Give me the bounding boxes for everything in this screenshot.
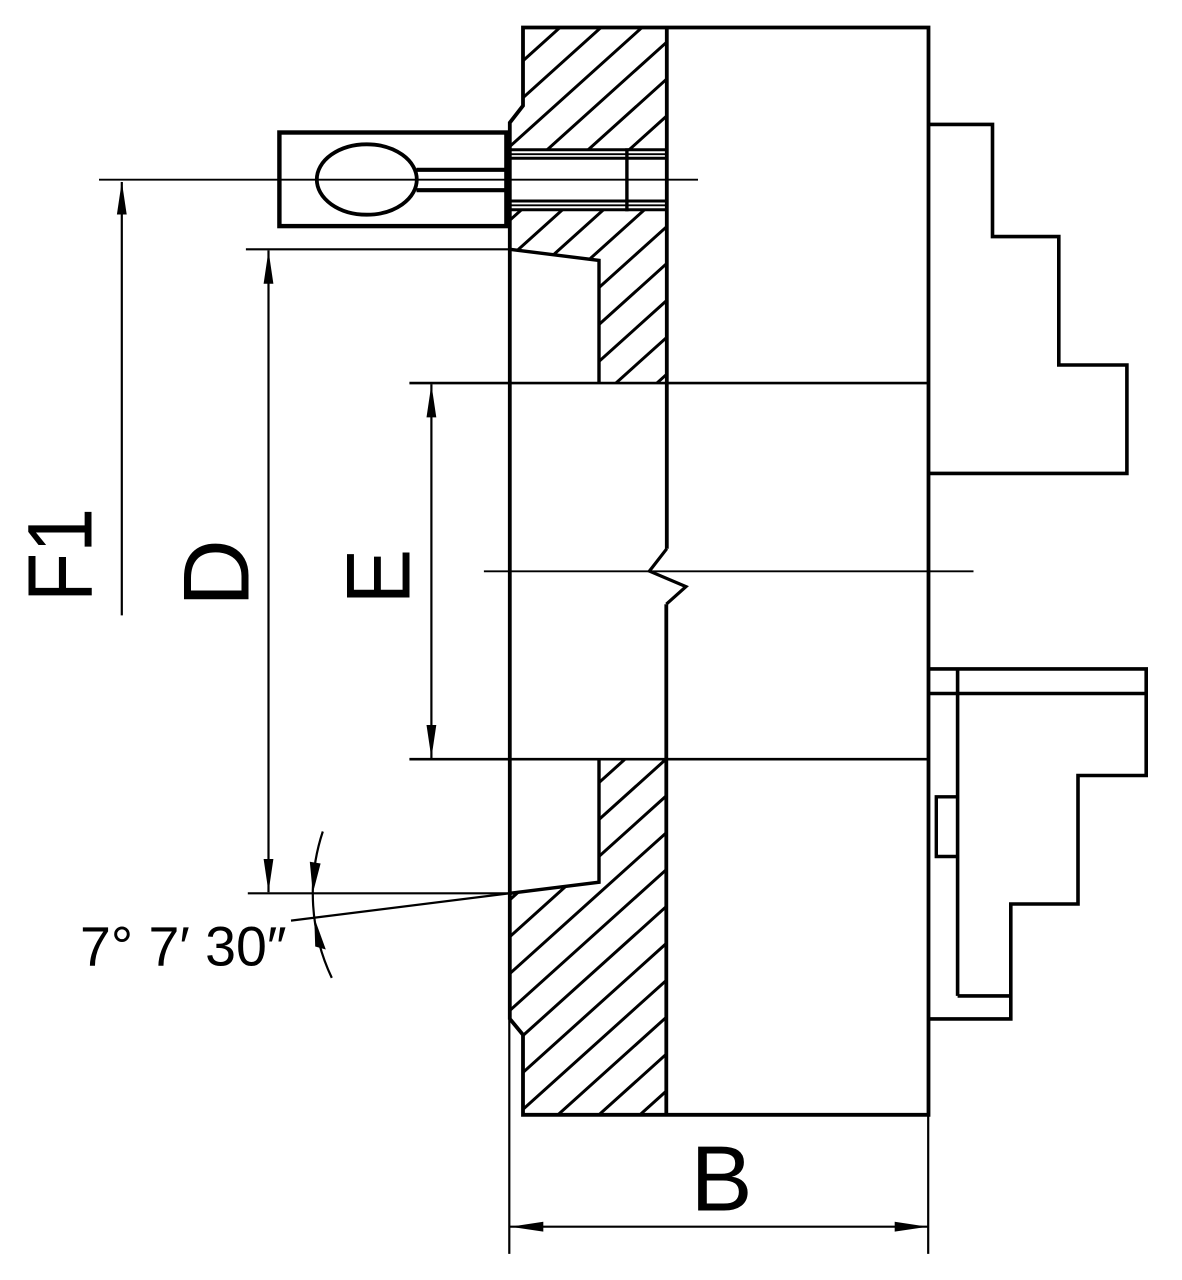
- svg-text:F1: F1: [10, 508, 112, 602]
- svg-text:7° 7′ 30″: 7° 7′ 30″: [80, 916, 287, 978]
- svg-text:B: B: [691, 1127, 753, 1231]
- svg-text:E: E: [329, 549, 430, 604]
- svg-text:D: D: [164, 539, 269, 607]
